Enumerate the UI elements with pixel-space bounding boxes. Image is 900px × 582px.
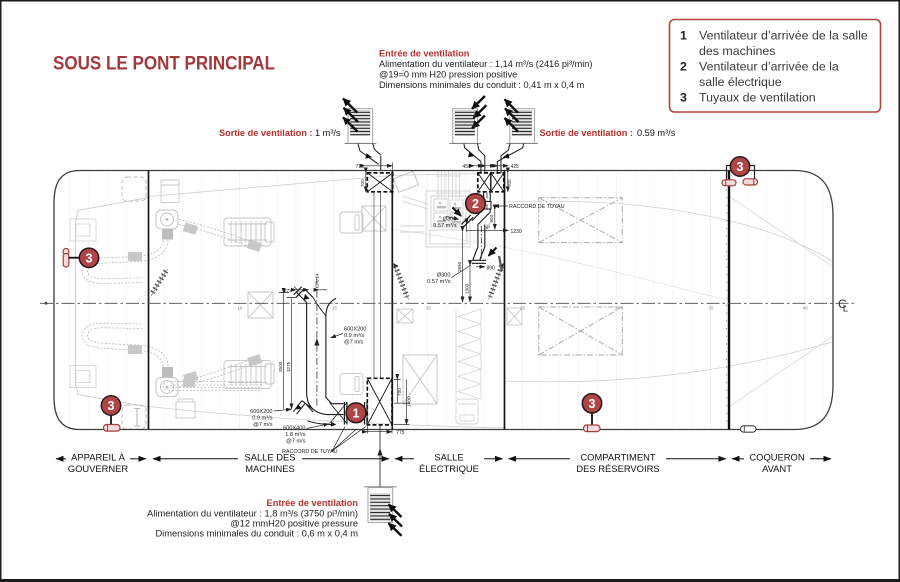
svg-text:SALLE DES: SALLE DES	[244, 452, 295, 463]
svg-text:2650: 2650	[457, 261, 462, 272]
svg-text:Sortie de ventilation :: Sortie de ventilation :	[540, 128, 633, 138]
svg-text:@7 m/s: @7 m/s	[286, 439, 306, 445]
svg-text:@12 mmH20 positive pressure: @12 mmH20 positive pressure	[230, 519, 358, 529]
svg-text:700: 700	[507, 179, 512, 187]
svg-text:1230: 1230	[511, 229, 522, 235]
svg-text:1: 1	[680, 29, 687, 43]
svg-text:AVANT: AVANT	[762, 463, 792, 474]
svg-text:Entrée de ventilation: Entrée de ventilation	[379, 49, 470, 59]
svg-text:650: 650	[489, 214, 494, 222]
svg-text:Alimentation du ventilateur :: Alimentation du ventilateur : 1,8 m³/s (…	[147, 509, 358, 519]
svg-text:600X400: 600X400	[283, 426, 305, 432]
svg-text:Alimentation du ventilateur :: Alimentation du ventilateur : 1,14 m³/s …	[379, 59, 592, 69]
svg-text:RACCORD DE TUYAU: RACCORD DE TUYAU	[509, 204, 565, 210]
svg-text:0.9 m³/s: 0.9 m³/s	[252, 416, 272, 422]
svg-text:30: 30	[614, 306, 620, 311]
svg-text:0.59 m³/s: 0.59 m³/s	[637, 128, 676, 138]
svg-text:Tuyaux de ventilation: Tuyaux de ventilation	[699, 91, 816, 105]
svg-text:1400: 1400	[406, 396, 412, 407]
svg-text:3275: 3275	[286, 361, 291, 372]
svg-text:600X200: 600X200	[344, 327, 366, 333]
svg-text:1 m³/s: 1 m³/s	[315, 128, 341, 138]
svg-text:Dimensions minimales du condui: Dimensions minimales du conduit : 0,6 m …	[155, 529, 358, 539]
svg-text:2: 2	[472, 197, 479, 211]
svg-text:0.57 m³/s: 0.57 m³/s	[427, 279, 451, 285]
svg-text:25: 25	[520, 306, 526, 311]
svg-text:des machines: des machines	[699, 44, 775, 58]
svg-text:600X200: 600X200	[250, 409, 272, 415]
svg-text:Dimensions minimales du condui: Dimensions minimales du conduit : 0,41 m…	[379, 80, 585, 90]
svg-text:775: 775	[355, 164, 364, 170]
svg-text:@19=0 mm H20 pression positive: @19=0 mm H20 pression positive	[379, 70, 517, 80]
svg-text:275: 275	[284, 288, 292, 294]
svg-text:GOUVERNER: GOUVERNER	[68, 463, 129, 474]
svg-text:1: 1	[353, 406, 360, 420]
svg-text:40: 40	[803, 306, 809, 311]
svg-text:1300: 1300	[465, 283, 470, 294]
svg-text:3: 3	[737, 160, 744, 174]
svg-text:SALLE: SALLE	[434, 452, 463, 463]
svg-text:10: 10	[237, 306, 243, 311]
svg-text:ÉLECTRIQUE: ÉLECTRIQUE	[419, 463, 479, 474]
svg-text:Sortie de ventilation :: Sortie de ventilation :	[219, 128, 312, 138]
svg-text:DES RÉSERVOIRS: DES RÉSERVOIRS	[576, 463, 659, 474]
svg-text:20: 20	[426, 306, 432, 311]
svg-text:3: 3	[108, 399, 115, 413]
svg-text:SOUS LE PONT PRINCIPAL: SOUS LE PONT PRINCIPAL	[53, 54, 275, 75]
svg-text:CPL 14: CPL 14	[315, 273, 320, 288]
svg-text:450: 450	[463, 164, 472, 170]
svg-text:700: 700	[360, 179, 365, 187]
svg-text:COMPARTIMENT: COMPARTIMENT	[580, 452, 655, 463]
svg-text:@7 m/s: @7 m/s	[344, 340, 364, 346]
svg-text:15: 15	[332, 306, 338, 311]
svg-text:Ventilateur d’arrivée de la: Ventilateur d’arrivée de la	[699, 60, 839, 74]
svg-text:775: 775	[396, 430, 405, 436]
svg-text:COQUERON: COQUERON	[749, 452, 804, 463]
svg-text:700: 700	[397, 388, 403, 396]
svg-text:@7 m/s: @7 m/s	[253, 422, 273, 428]
svg-text:890: 890	[487, 265, 496, 271]
svg-text:35: 35	[708, 306, 714, 311]
svg-text:3: 3	[680, 91, 687, 105]
svg-text:APPAREIL À: APPAREIL À	[71, 452, 125, 463]
svg-text:3: 3	[86, 251, 93, 265]
svg-text:salle électrique: salle électrique	[699, 75, 782, 89]
svg-text:L: L	[843, 304, 848, 315]
svg-text:Entrée de ventilation: Entrée de ventilation	[267, 498, 359, 508]
svg-text:425: 425	[511, 164, 520, 170]
svg-text:Ventilateur d’arrivée de la sa: Ventilateur d’arrivée de la salle	[699, 29, 868, 43]
svg-text:Ø300: Ø300	[437, 273, 451, 279]
svg-text:0.9 m³/s: 0.9 m³/s	[344, 333, 364, 339]
svg-text:3500: 3500	[278, 361, 283, 372]
svg-text:MACHINES: MACHINES	[245, 463, 294, 474]
svg-text:1.8 m³/s: 1.8 m³/s	[285, 432, 305, 438]
svg-text:2: 2	[680, 60, 687, 74]
svg-text:0.57 m³/s: 0.57 m³/s	[433, 223, 457, 229]
svg-text:3: 3	[589, 397, 596, 411]
